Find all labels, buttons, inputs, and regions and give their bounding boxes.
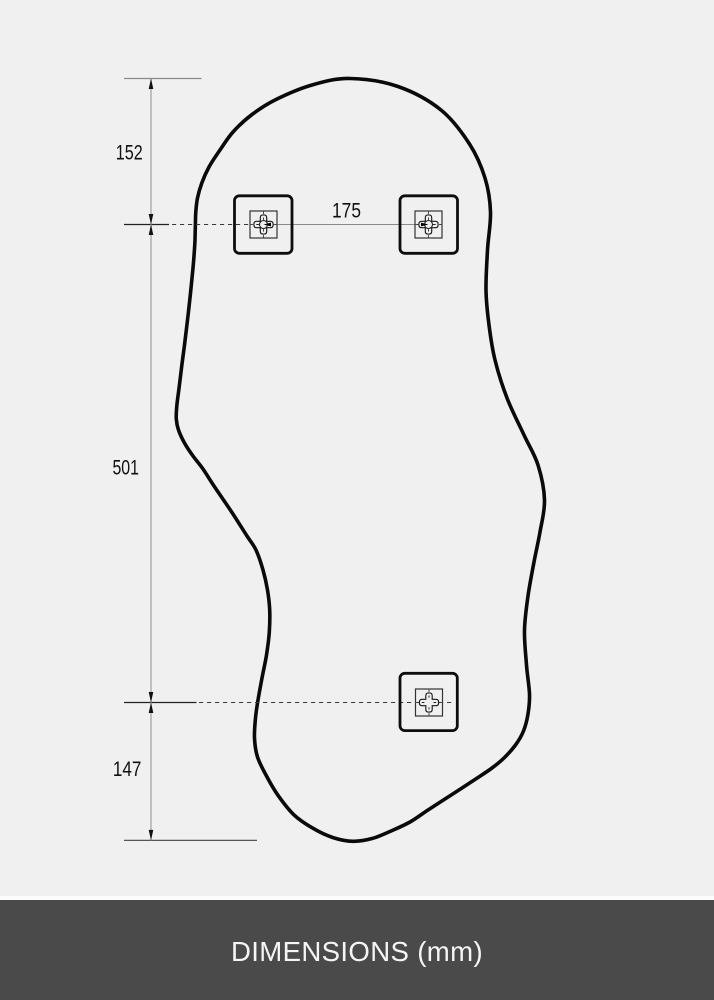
svg-text:147: 147: [113, 757, 142, 781]
svg-text:501: 501: [112, 456, 139, 480]
svg-text:175: 175: [332, 198, 361, 222]
svg-text:152: 152: [116, 141, 143, 165]
